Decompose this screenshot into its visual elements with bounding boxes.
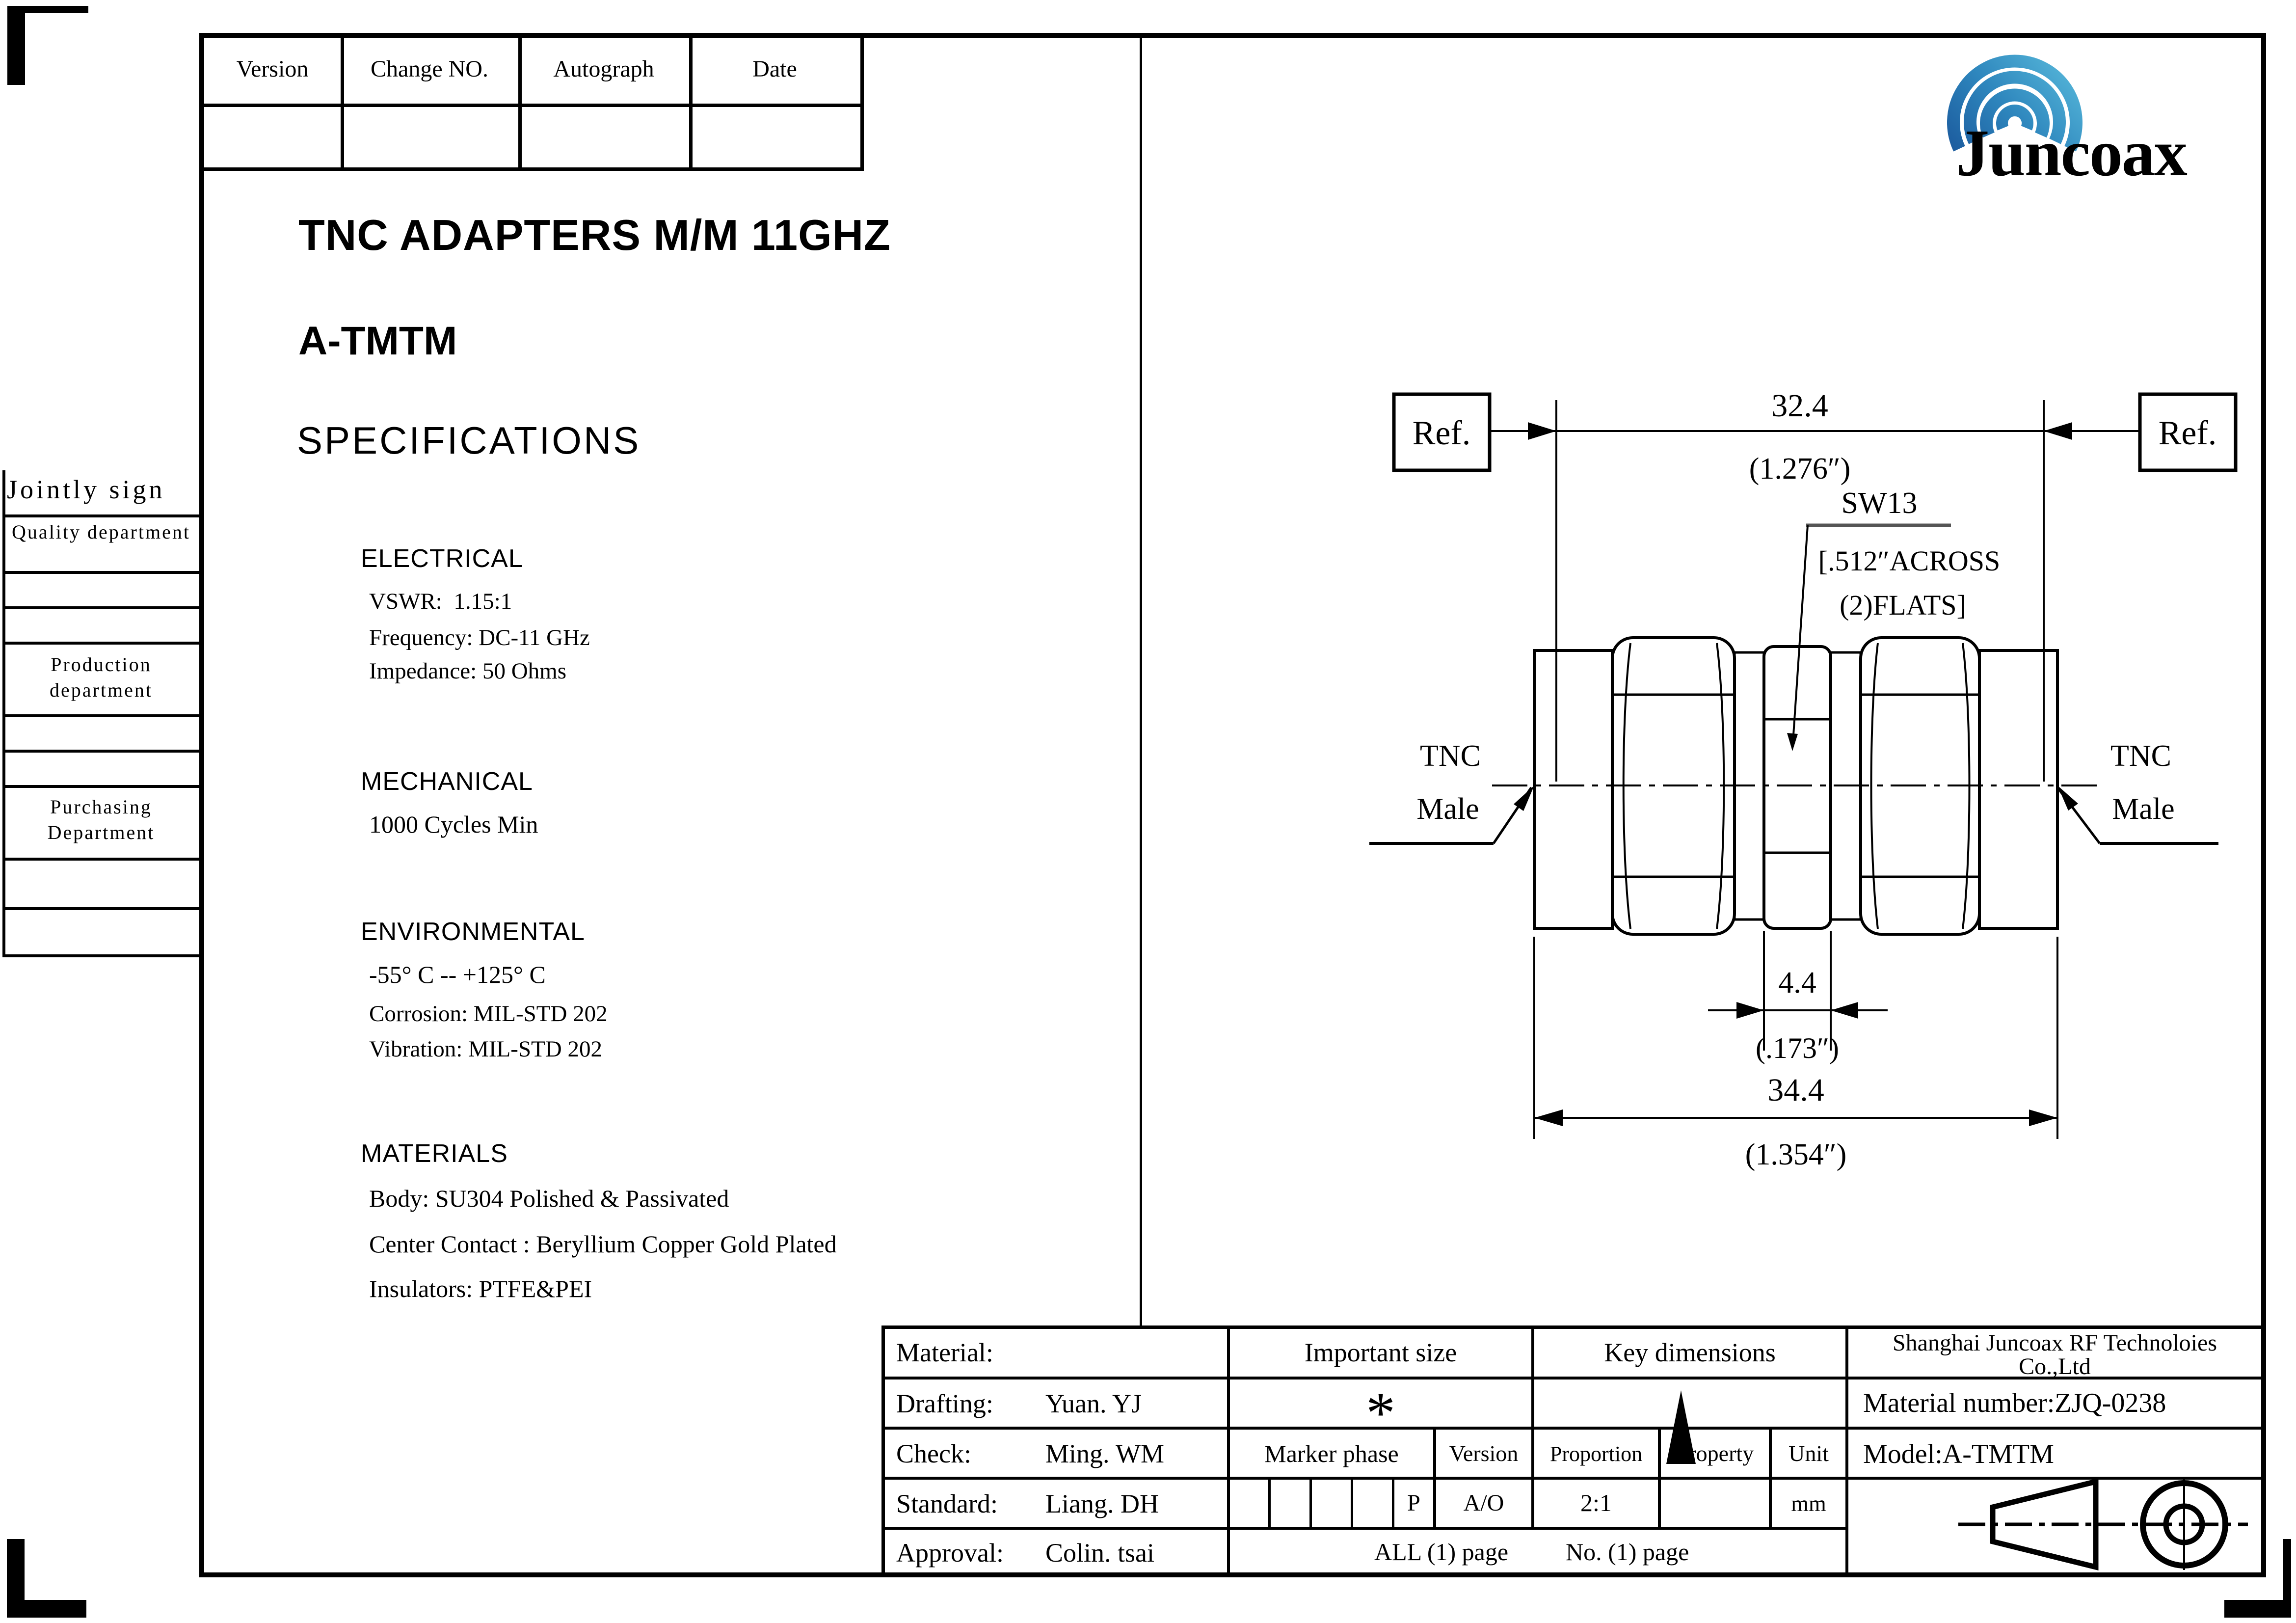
check-value: Ming. WM: [1045, 1438, 1164, 1469]
rev-line: [204, 167, 864, 171]
company-name-line2: Co.,Ltd: [1848, 1353, 2261, 1380]
ref-label-right: Ref.: [2159, 414, 2217, 452]
model-value: Model:A-TMTM: [1863, 1438, 2054, 1470]
corner-mark-bottom-right-v: [2283, 1539, 2291, 1618]
key-dimensions-header: Key dimensions: [1534, 1337, 1845, 1368]
tnc-right-line1: TNC: [2110, 739, 2171, 773]
sidebar-row-purchasing: Purchasing Department: [5, 794, 197, 845]
spec-corrosion: Corrosion: MIL-STD 202: [369, 1001, 608, 1027]
dim-4-4: 4.4 (.173″): [1708, 931, 1888, 1064]
version-header: Version: [1436, 1440, 1531, 1466]
tb-line: [881, 1427, 2261, 1430]
proportion-value: 2:1: [1534, 1488, 1658, 1517]
approval-label: Approval:: [896, 1538, 1004, 1568]
material-number: Material number:ZJQ-0238: [1863, 1387, 2166, 1419]
juncoax-logo: Juncoax: [1924, 42, 2218, 189]
property-header: Property: [1661, 1440, 1769, 1466]
sidebar-line: [2, 858, 199, 861]
sidebar-line: [2, 907, 199, 910]
all-page: ALL (1) page: [1374, 1538, 1508, 1566]
tnc-right-line2: Male: [2112, 792, 2174, 826]
marker-phase-header: Marker phase: [1230, 1439, 1433, 1468]
material-label: Material:: [896, 1337, 993, 1368]
model-title: A-TMTM: [298, 318, 457, 364]
corner-mark-bottom-left-h: [7, 1600, 86, 1618]
ref-label-left: Ref.: [1413, 414, 1471, 452]
sidebar-line: [2, 514, 199, 517]
dim-32-4-inch: (1.276″): [1749, 452, 1851, 486]
content-divider: [1140, 38, 1142, 1325]
revision-col-change-no: Change NO.: [341, 55, 518, 82]
spec-body: Body: SU304 Polished & Passivated: [369, 1184, 729, 1213]
spec-vswr: VSWR: 1.15:1: [369, 588, 512, 615]
section-title: SPECIFICATIONS: [297, 418, 641, 463]
unit-header: Unit: [1772, 1440, 1845, 1466]
corner-mark-top-left-h: [7, 6, 88, 13]
version-value: A/O: [1436, 1489, 1531, 1516]
spec-center-contact: Center Contact : Beryllium Copper Gold P…: [369, 1230, 837, 1258]
tnc-male-right-callout: TNC Male: [2057, 739, 2218, 843]
sidebar-line: [2, 785, 199, 788]
sidebar-line: [2, 714, 199, 717]
no-page: No. (1) page: [1566, 1538, 1689, 1566]
sidebar-line: [2, 606, 199, 609]
sidebar-line: [2, 750, 199, 753]
frame-top: [199, 33, 2266, 38]
dim-32-4-mm: 32.4: [1771, 388, 1828, 424]
adapter-technical-drawing: Ref. Ref. 32.4 (1.276″) SW13 [.512″ACROS…: [1276, 314, 2268, 1178]
drawing-sheet: Version Change NO. Autograph Date Jointl…: [0, 0, 2296, 1623]
dim-4-4-inch: (.173″): [1756, 1032, 1839, 1064]
rev-line: [204, 104, 864, 107]
standard-value: Liang. DH: [1045, 1488, 1159, 1519]
tb-line: [881, 1325, 2261, 1329]
materials-heading: MATERIALS: [361, 1139, 508, 1168]
sidebar-row-production: Production department: [5, 652, 197, 703]
revision-empty-row: [204, 107, 860, 167]
revision-col-version: Version: [204, 55, 341, 82]
sw13-flats: (2)FLATS]: [1840, 589, 1966, 621]
tb-line: [881, 1527, 1845, 1530]
environmental-heading: ENVIRONMENTAL: [361, 917, 585, 947]
tnc-left-line1: TNC: [1420, 739, 1481, 773]
sidebar-line: [2, 954, 199, 957]
standard-label: Standard:: [896, 1488, 998, 1519]
company-name-line1: Shanghai Juncoax RF Technoloies: [1848, 1329, 2261, 1356]
unit-value: mm: [1772, 1490, 1845, 1516]
sidebar-title: Jointly sign: [7, 474, 165, 505]
corner-mark-bottom-right-h: [2224, 1600, 2291, 1618]
drafting-label: Drafting:: [896, 1388, 993, 1419]
third-angle-projection-icon: [1944, 1473, 2258, 1576]
important-size-header: Important size: [1230, 1337, 1531, 1368]
check-label: Check:: [896, 1438, 971, 1469]
electrical-heading: ELECTRICAL: [361, 544, 523, 573]
spec-frequency: Frequency: DC-11 GHz: [369, 624, 590, 651]
sidebar-row-quality: Quality department: [5, 519, 197, 545]
tnc-left-line2: Male: [1416, 792, 1479, 826]
sidebar-line: [2, 642, 199, 645]
spec-insulators: Insulators: PTFE&PEI: [369, 1274, 592, 1303]
mechanical-heading: MECHANICAL: [361, 767, 533, 796]
dim-34-4-mm: 34.4: [1767, 1072, 1824, 1108]
spec-impedance: Impedance: 50 Ohms: [369, 658, 566, 684]
tb-line: [1351, 1477, 1353, 1530]
drafting-value: Yuan. YJ: [1045, 1388, 1142, 1419]
tb-line: [881, 1325, 885, 1572]
revision-col-date: Date: [689, 55, 860, 82]
approval-value: Colin. tsai: [1045, 1538, 1154, 1568]
sw13-text: SW13: [1842, 487, 1918, 520]
tnc-male-left-callout: TNC Male: [1369, 739, 1534, 843]
frame-left: [199, 33, 204, 1577]
dim-34-4-inch: (1.354″): [1745, 1138, 1847, 1171]
spec-temperature: -55° C -- +125° C: [369, 960, 546, 989]
proportion-header: Proportion: [1534, 1441, 1658, 1466]
tb-line: [1309, 1477, 1312, 1530]
page-title: TNC ADAPTERS M/M 11GHZ: [298, 210, 891, 260]
rev-line: [860, 38, 864, 171]
dim-4-4-mm: 4.4: [1778, 966, 1816, 1000]
important-size-mark: *: [1230, 1383, 1531, 1442]
sw13-across: [.512″ACROSS: [1818, 545, 2001, 577]
revision-col-autograph: Autograph: [518, 55, 689, 82]
spec-cycles: 1000 Cycles Min: [369, 810, 538, 839]
tb-line: [1268, 1477, 1271, 1530]
phase-p-cell: P: [1394, 1489, 1433, 1516]
logo-text: Juncoax: [1956, 116, 2188, 189]
corner-mark-top-left-v: [7, 6, 25, 85]
spec-vibration: Vibration: MIL-STD 202: [369, 1036, 602, 1062]
sidebar-line: [2, 571, 199, 574]
